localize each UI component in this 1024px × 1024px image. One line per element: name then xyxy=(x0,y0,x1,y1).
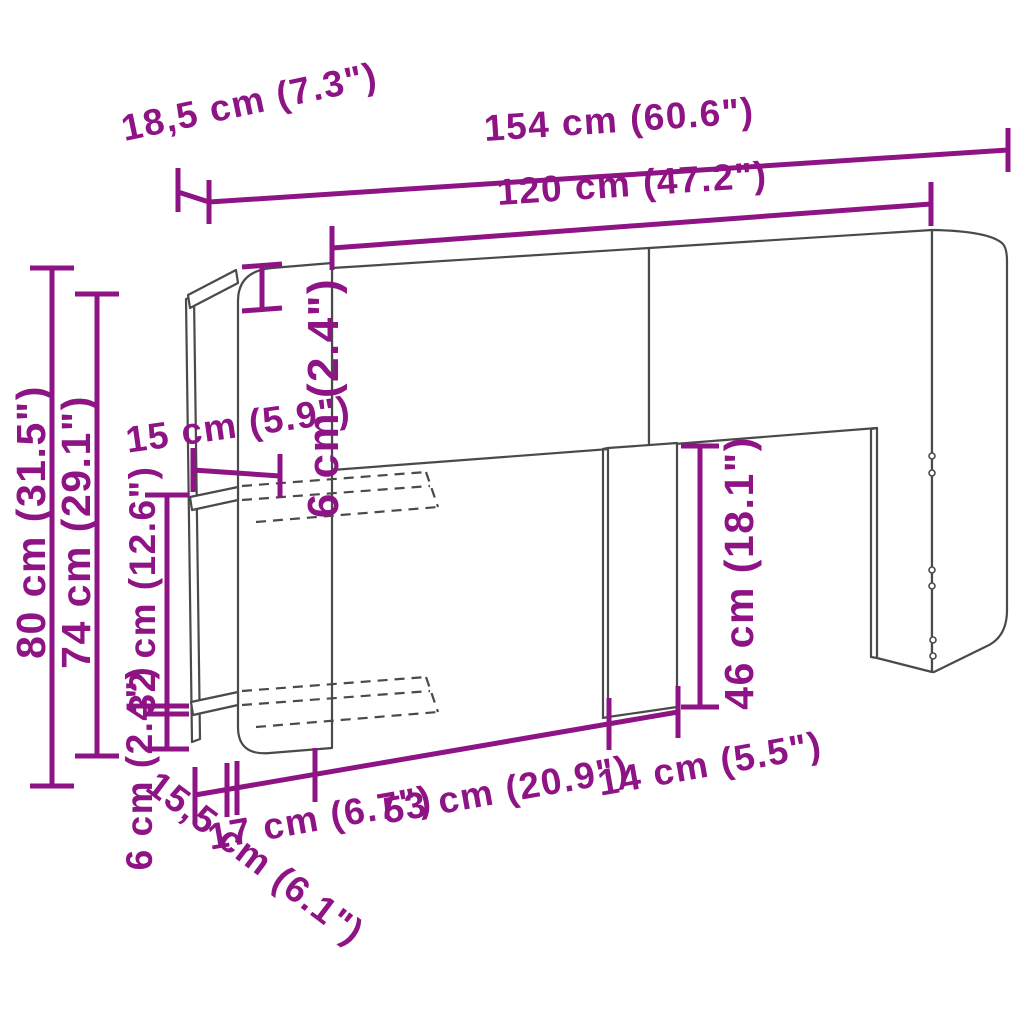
screw-icon xyxy=(929,453,935,459)
dim-leg-height-line xyxy=(681,446,719,707)
dimension-lines xyxy=(30,128,1008,823)
screw-icon xyxy=(929,583,935,589)
dim-base-53-label: 53 cm (20.9") xyxy=(380,748,632,832)
dim-side-unit-depth-line xyxy=(178,168,209,224)
side-unit-left-panel xyxy=(186,296,200,742)
hidden-edge xyxy=(426,677,438,712)
diagram-canvas: 154 cm (60.6") 120 cm (47.2") 18,5 cm (7… xyxy=(0,0,1024,1024)
headboard-left-panel xyxy=(332,248,649,470)
dim-bottom-clearance-label: 6 cm (2.4") xyxy=(119,666,160,871)
dim-side-unit-depth-label: 18,5 cm (7.3") xyxy=(118,55,381,149)
right-side-panel xyxy=(932,230,1007,672)
dim-leg-width-label: 14 cm (5.5") xyxy=(595,724,825,804)
side-unit-top-shelf xyxy=(188,270,238,308)
dim-base-depth-label: 15,5 cm (6.1") xyxy=(139,763,372,953)
dimension-diagram: 154 cm (60.6") 120 cm (47.2") 18,5 cm (7… xyxy=(0,0,1024,1024)
dim-headboard-width-label: 120 cm (47.2") xyxy=(496,154,769,213)
dim-total-width-label: 154 cm (60.6") xyxy=(483,90,756,149)
screw-icon xyxy=(929,567,935,573)
dim-side-unit-height-label: 74 cm (29.1") xyxy=(53,395,99,669)
screw-icon xyxy=(930,637,936,643)
dim-total-height-label: 80 cm (31.5") xyxy=(8,385,54,659)
screw-icon xyxy=(929,470,935,476)
middle-leg xyxy=(608,443,677,717)
screw-icon xyxy=(930,653,936,659)
headboard-right-panel xyxy=(649,230,932,672)
dim-leg-height-label: 46 cm (18.1") xyxy=(716,436,762,710)
hidden-edge xyxy=(426,472,438,507)
